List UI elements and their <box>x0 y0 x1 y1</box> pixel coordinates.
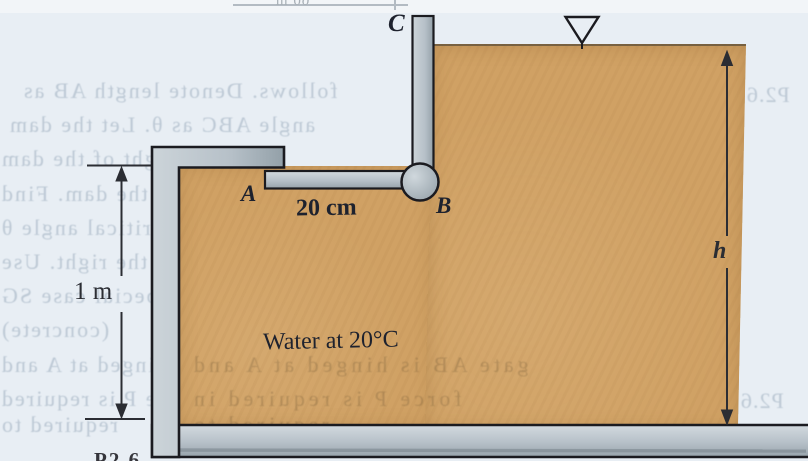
diagram-structure <box>0 0 808 461</box>
dim-label-20cm: 20 cm <box>296 195 357 220</box>
dim-label-h: h <box>713 239 726 263</box>
point-label-c: C <box>388 11 405 36</box>
gate-hinge-b <box>402 164 439 201</box>
tank-wall-bottom-shadow <box>160 450 806 451</box>
gate-bar-ab <box>265 171 407 189</box>
dim-label-1m: 1 m <box>74 279 112 304</box>
water-surface-symbol <box>566 17 599 49</box>
tank-wall-left <box>152 147 284 457</box>
gate-bar-bc <box>413 16 434 171</box>
figure-canvas: 60 m follows. Denote length AB as angle … <box>0 0 808 461</box>
point-label-a: A <box>241 182 256 205</box>
point-label-b: B <box>436 194 451 217</box>
water-temp-label: Water at 20°C <box>263 328 399 355</box>
caption-fragment: P2.6 <box>94 448 141 461</box>
